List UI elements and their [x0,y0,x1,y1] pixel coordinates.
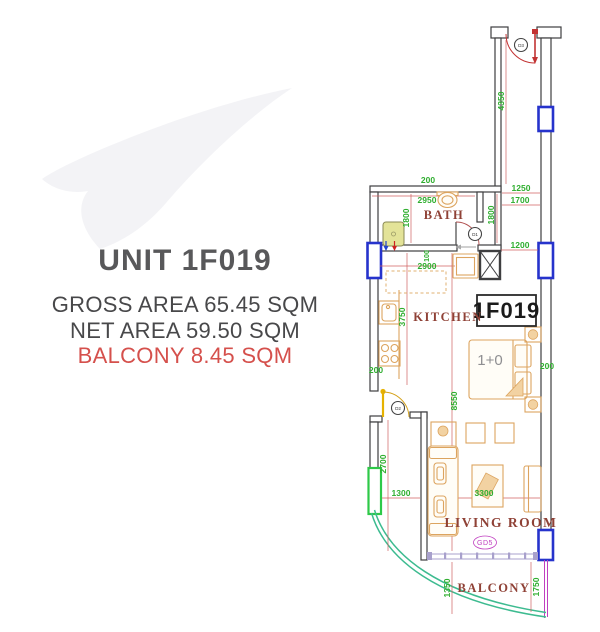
armchair [524,466,541,512]
kitchen-overhead-cabinet [386,271,446,293]
dim-1800-left: 1800 [401,208,411,227]
wall-left-3 [370,422,378,468]
ottoman-left [466,423,485,443]
window-bath-right [539,243,554,278]
duct-shaft [480,251,500,279]
bed [469,340,531,399]
nightstand-bottom [525,397,541,412]
wall-bath-bottom-left [370,245,457,251]
wall-right-top [541,38,551,107]
dim-8550: 8550 [449,391,459,410]
window-living-right [539,530,554,560]
door-tag-d3-label: D3 [518,43,524,48]
wall-entry-cap-right [537,27,561,38]
floorplan-page: UNIT 1F019 GROSS AREA 65.45 SQM NET AREA… [0,0,600,632]
dim-1300: 1300 [392,488,411,498]
wall-left-stub [370,416,382,422]
dim-200-left: 200 [369,365,383,375]
coffee-table [472,465,503,507]
gate-tag-gd5: GD5 [474,536,497,549]
dim-1200: 1200 [511,240,530,250]
gate-tag-label: GD5 [477,540,493,547]
bath-sink [437,192,458,208]
dim-2900: 2900 [418,261,437,271]
window-corridor-right [539,107,554,131]
dim-200-top: 200 [421,175,435,185]
dim-3300: 3300 [475,488,494,498]
room-label-kitchen: KITCHEN [413,310,483,324]
room-label-bath: BATH [424,208,465,222]
window-living-left-green [369,468,382,514]
door-tag-d2-label: D2 [395,406,401,411]
door-tag-d1-label: D1 [472,232,478,237]
kitchen-stove [379,341,400,366]
wall-bath-top [370,186,501,192]
dim-1800-right: 1800 [486,205,496,224]
dim-1700: 1700 [511,195,530,205]
dim-2950: 2950 [418,195,437,205]
wall-living-v [421,412,427,560]
dim-1250: 1250 [512,183,531,193]
bed-type-label: 1+0 [477,352,502,369]
room-label-living: LIVING ROOM [445,515,558,530]
dim-200-right: 200 [540,361,554,371]
dim-1750: 1750 [531,577,541,596]
window-bath-left [368,243,382,278]
nightstand-top [525,327,541,342]
unit-number-box: 1F019 [473,295,540,326]
wall-right-mid [541,131,551,243]
watermark-logo [42,88,292,249]
wall-entry-cap-left [491,27,508,38]
dim-1350: 1350 [442,578,452,597]
ottoman-right [495,423,514,443]
wall-bath-right [477,192,483,222]
floorplan-drawing: D3 D1 D2 1F019 BATH KITCHEN LIVING ROOM … [0,0,600,632]
dim-3750: 3750 [397,307,407,326]
wall-left-1 [370,192,378,243]
door-hinge-dot [380,389,385,394]
balcony-sliding-door [427,552,538,560]
unit-number-text: 1F019 [473,298,540,323]
dim-4350: 4350 [496,91,506,110]
dim-2700: 2700 [378,454,388,473]
room-label-balcony: BALCONY [457,581,530,595]
kitchen-sink-unit [379,301,399,324]
kitchen-fridge [453,254,478,278]
wall-right-low [541,278,551,530]
balcony-edge-magenta [545,560,548,618]
